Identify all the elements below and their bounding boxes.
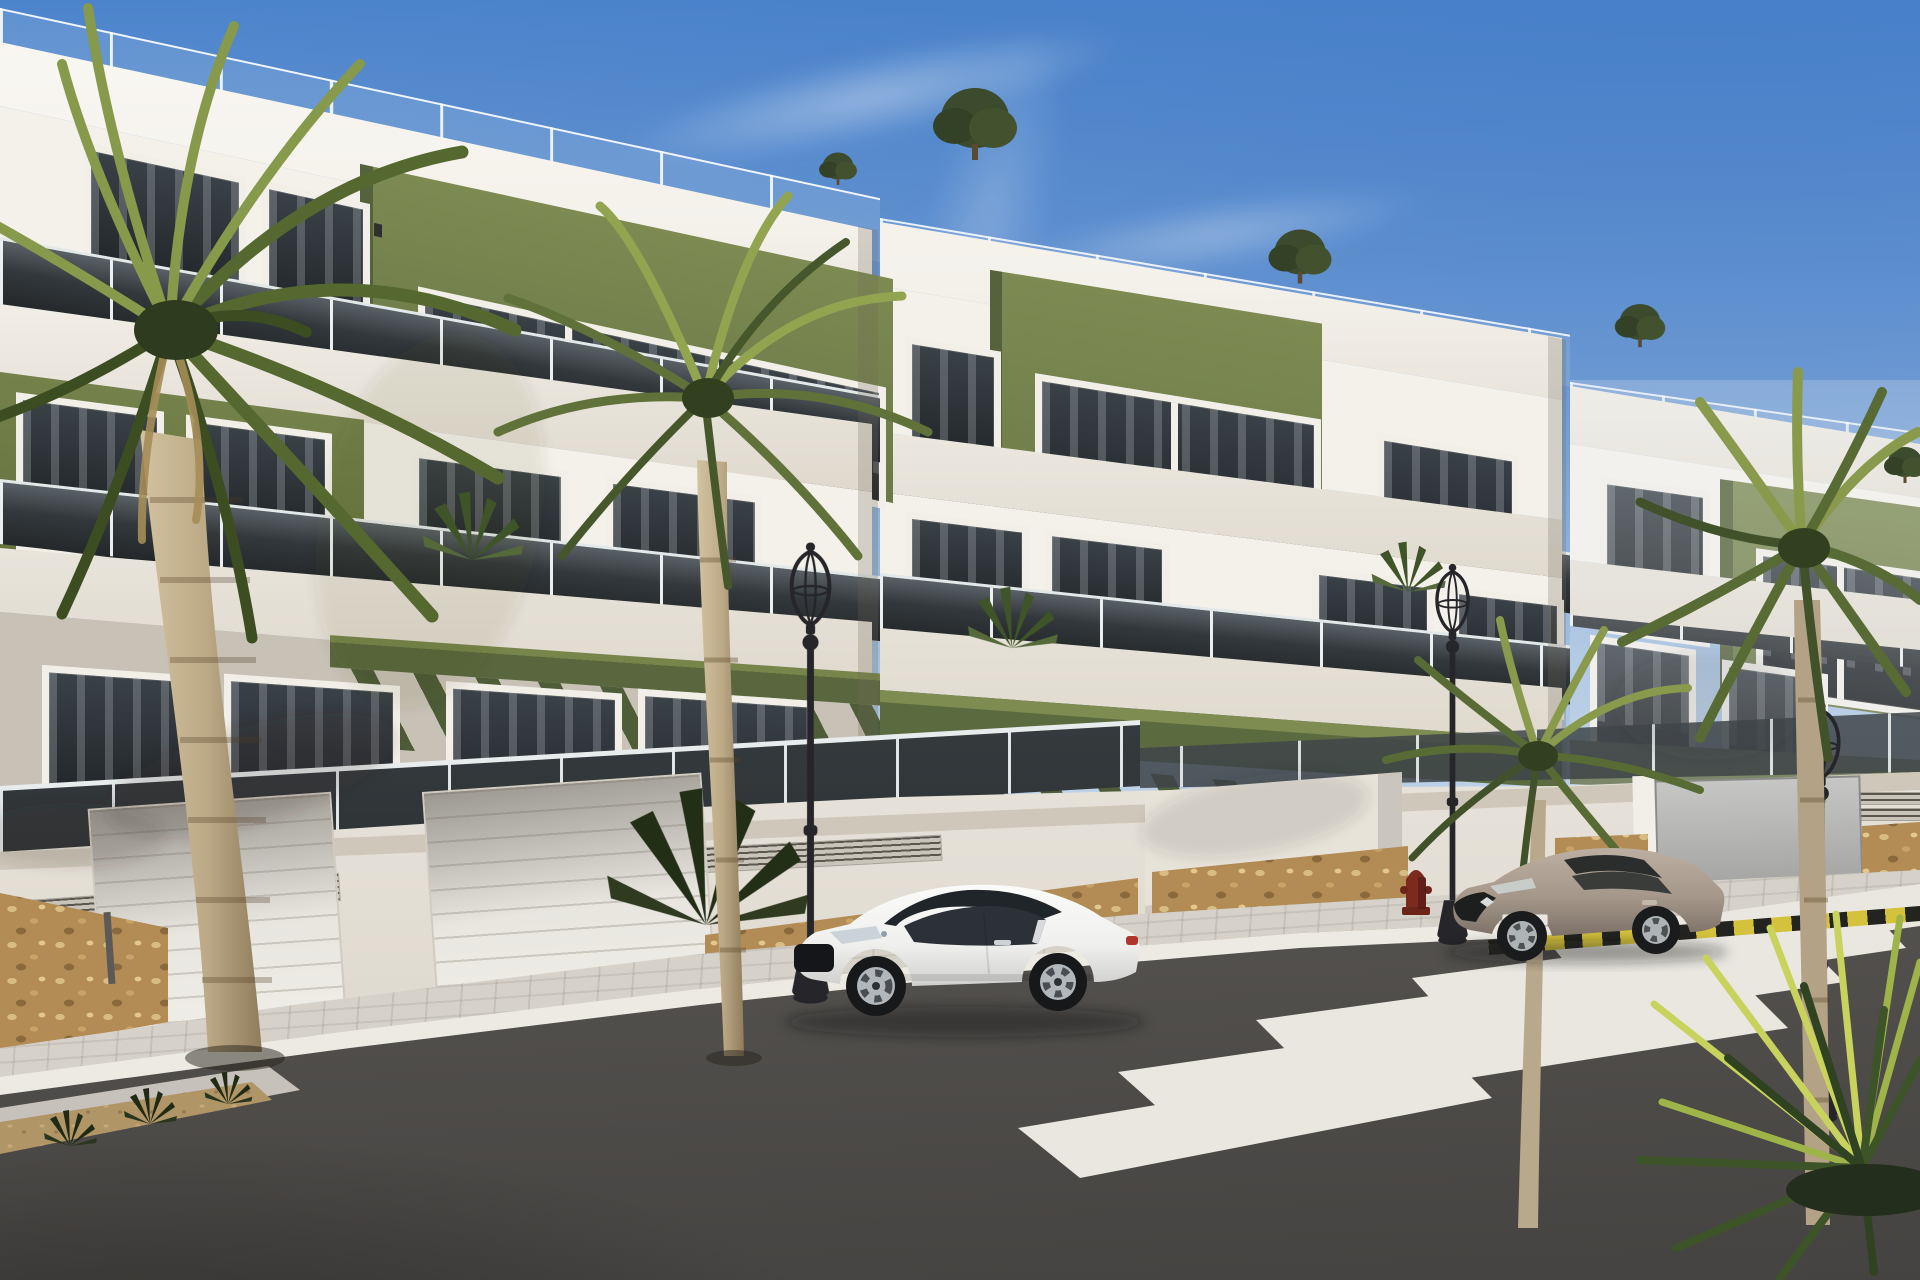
apartment-exterior-rendering [0,0,1920,1280]
street-lamp [1437,564,1468,945]
car-shadow [1444,941,1728,963]
fire-hydrant [1400,870,1432,915]
yucca-plant [1640,914,1920,1278]
scene-overlay [0,0,1920,1280]
car-white-coupe [794,885,1140,1016]
car-shadow [785,1007,1145,1037]
balcony-plants [423,492,1446,925]
rooftop-shrubs [819,88,1920,483]
planter-tufts [44,1072,252,1146]
